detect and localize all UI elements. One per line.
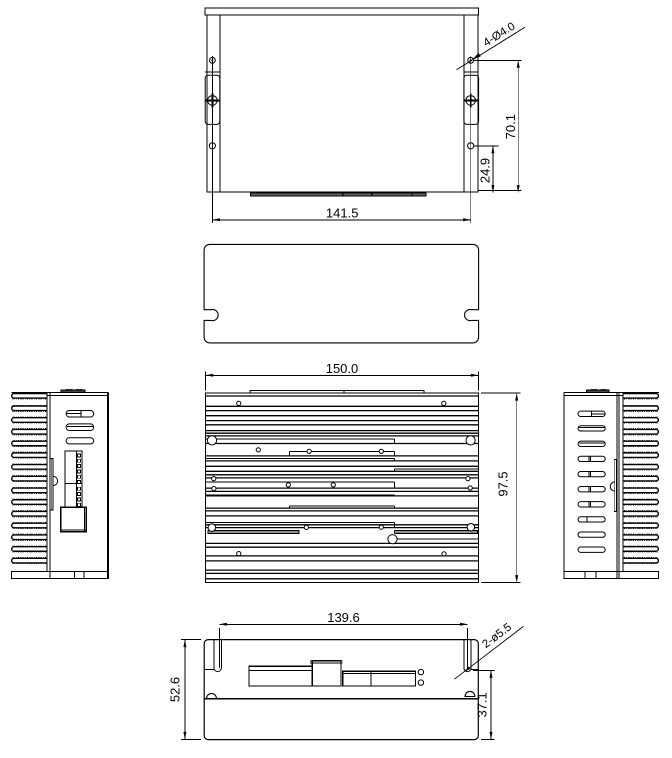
svg-text:70.1: 70.1: [503, 114, 518, 139]
svg-text:97.5: 97.5: [496, 471, 511, 496]
svg-text:37.1: 37.1: [474, 692, 489, 717]
svg-text:139.6: 139.6: [327, 610, 360, 625]
svg-text:52.6: 52.6: [168, 677, 183, 702]
svg-text:24.9: 24.9: [478, 158, 493, 183]
svg-text:141.5: 141.5: [326, 206, 359, 221]
svg-text:150.0: 150.0: [326, 361, 359, 376]
